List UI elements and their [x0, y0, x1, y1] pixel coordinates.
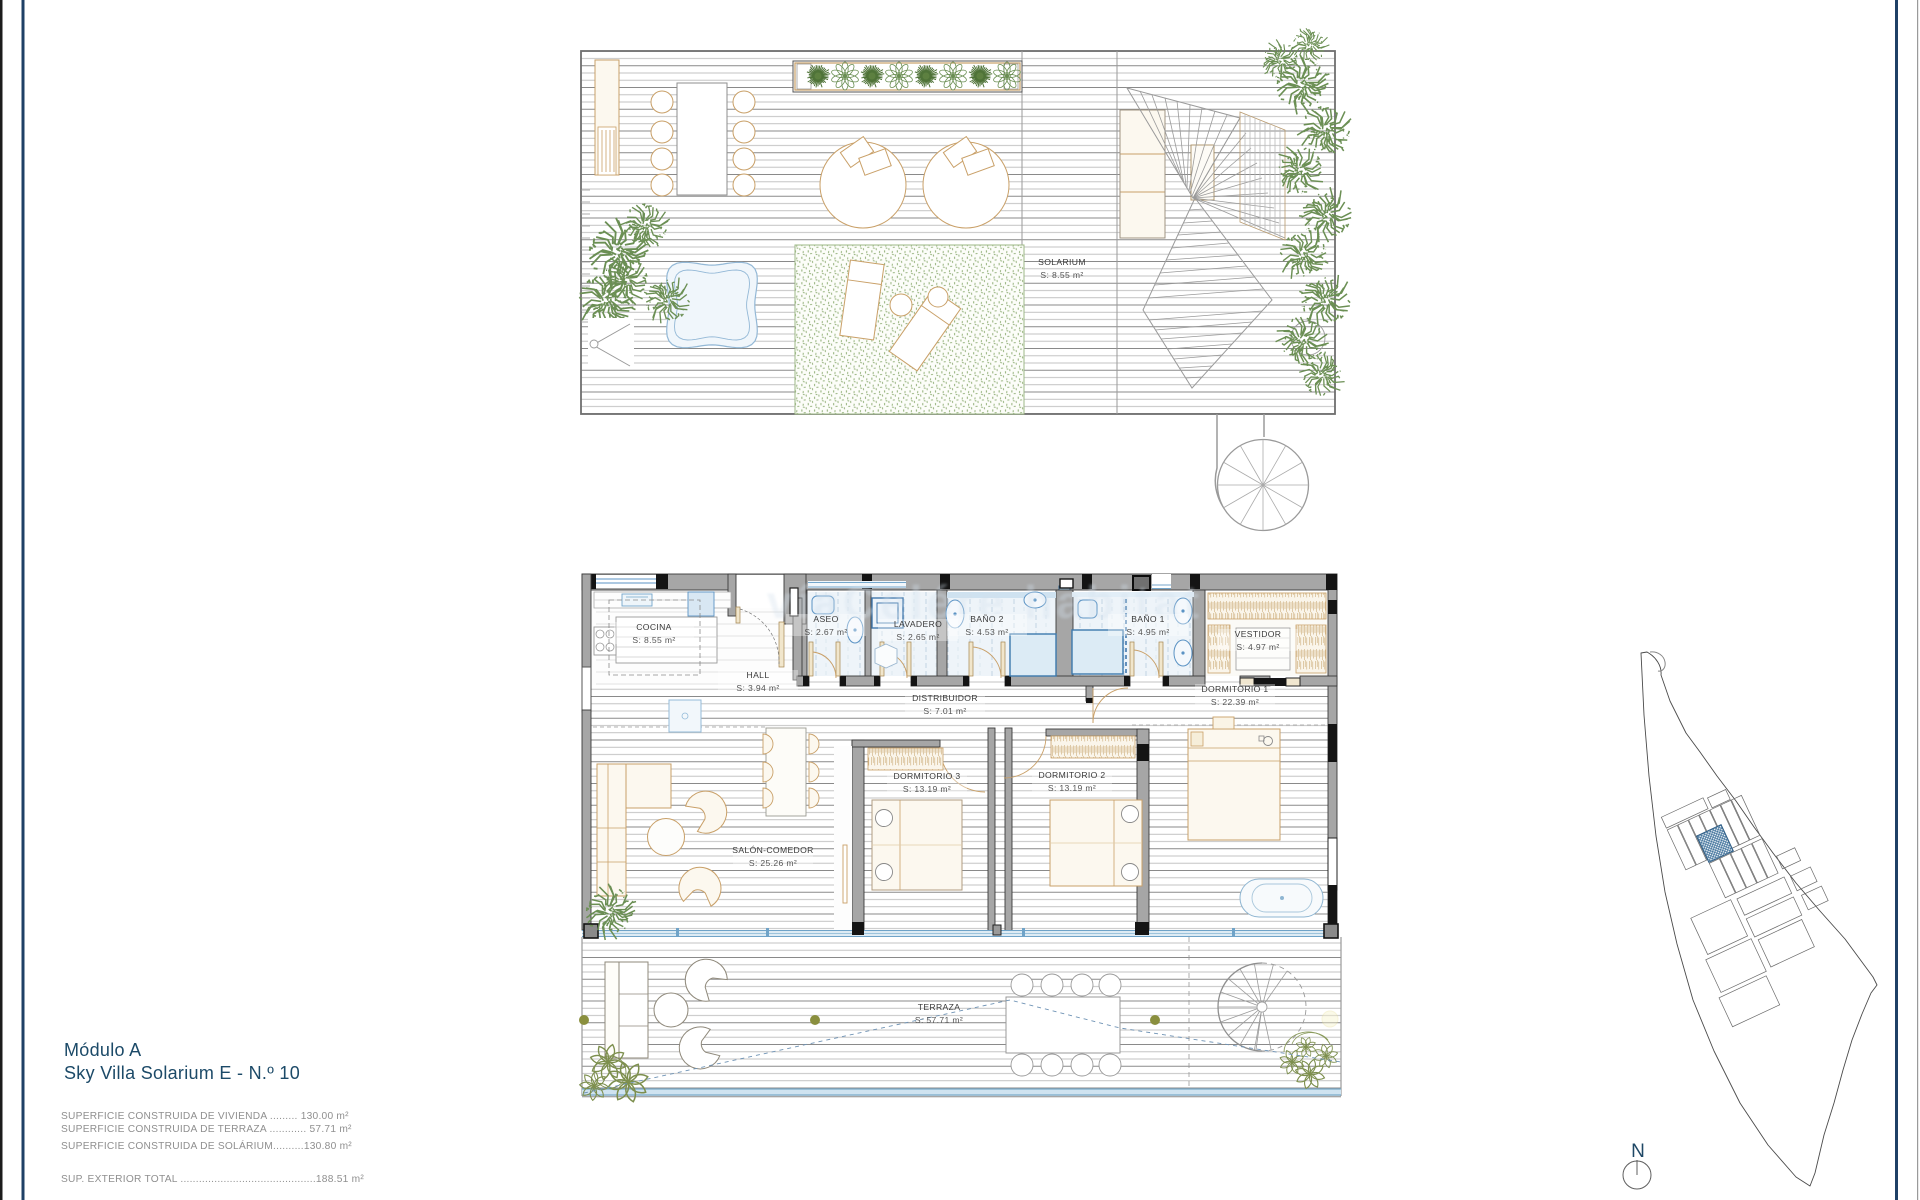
svg-text:S: 22.39 m²: S: 22.39 m² — [1211, 697, 1259, 707]
svg-text:S: 7.01 m²: S: 7.01 m² — [923, 706, 966, 716]
svg-text:S: 2.67 m²: S: 2.67 m² — [804, 627, 847, 637]
svg-text:ASEO: ASEO — [813, 614, 838, 624]
svg-text:Sky Villa Solarium E - N.º 10: Sky Villa Solarium E - N.º 10 — [64, 1063, 300, 1083]
svg-text:SUPERFICIE CONSTRUIDA DE VIVIE: SUPERFICIE CONSTRUIDA DE VIVIENDA ......… — [61, 1111, 349, 1122]
svg-text:S: 13.19 m²: S: 13.19 m² — [1048, 783, 1096, 793]
svg-text:BAÑO 2: BAÑO 2 — [970, 614, 1004, 624]
svg-text:S: 3.94 m²: S: 3.94 m² — [736, 683, 779, 693]
svg-text:HALL: HALL — [747, 670, 770, 680]
svg-text:S: 13.19 m²: S: 13.19 m² — [903, 784, 951, 794]
svg-text:DORMITORIO 3: DORMITORIO 3 — [893, 771, 960, 781]
svg-text:S: 8.55 m²: S: 8.55 m² — [632, 635, 675, 645]
svg-text:BAÑO 1: BAÑO 1 — [1131, 614, 1165, 624]
svg-text:SOLARIUM: SOLARIUM — [1038, 257, 1086, 267]
svg-text:SUPERFICIE CONSTRUIDA DE SOLÁR: SUPERFICIE CONSTRUIDA DE SOLÁRIUM.......… — [61, 1139, 352, 1152]
svg-text:S: 8.55 m²: S: 8.55 m² — [1040, 270, 1083, 280]
svg-text:Módulo A: Módulo A — [64, 1040, 141, 1060]
svg-text:VESTIDOR: VESTIDOR — [1235, 629, 1282, 639]
svg-text:LAVADERO: LAVADERO — [894, 619, 942, 629]
svg-text:S: 4.53 m²: S: 4.53 m² — [965, 627, 1008, 637]
svg-text:N: N — [1631, 1141, 1645, 1162]
svg-text:DISTRIBUIDOR: DISTRIBUIDOR — [912, 693, 978, 703]
svg-text:S: 4.95 m²: S: 4.95 m² — [1126, 627, 1169, 637]
svg-text:TERRAZA: TERRAZA — [918, 1002, 961, 1012]
svg-text:SUPERFICIE CONSTRUIDA DE TERRA: SUPERFICIE CONSTRUIDA DE TERRAZA .......… — [61, 1124, 352, 1135]
svg-text:DORMITORIO 2: DORMITORIO 2 — [1038, 770, 1105, 780]
svg-text:SALÓN-COMEDOR: SALÓN-COMEDOR — [732, 845, 813, 855]
svg-text:DORMITORIO 1: DORMITORIO 1 — [1201, 684, 1268, 694]
svg-text:S: 2.65 m²: S: 2.65 m² — [896, 632, 939, 642]
svg-text:SUP. EXTERIOR TOTAL ..........: SUP. EXTERIOR TOTAL ....................… — [61, 1174, 364, 1185]
svg-text:S: 57.71 m²: S: 57.71 m² — [915, 1015, 963, 1025]
svg-text:COCINA: COCINA — [636, 622, 672, 632]
svg-text:S: 4.97 m²: S: 4.97 m² — [1236, 642, 1279, 652]
svg-text:S: 25.26 m²: S: 25.26 m² — [749, 858, 797, 868]
